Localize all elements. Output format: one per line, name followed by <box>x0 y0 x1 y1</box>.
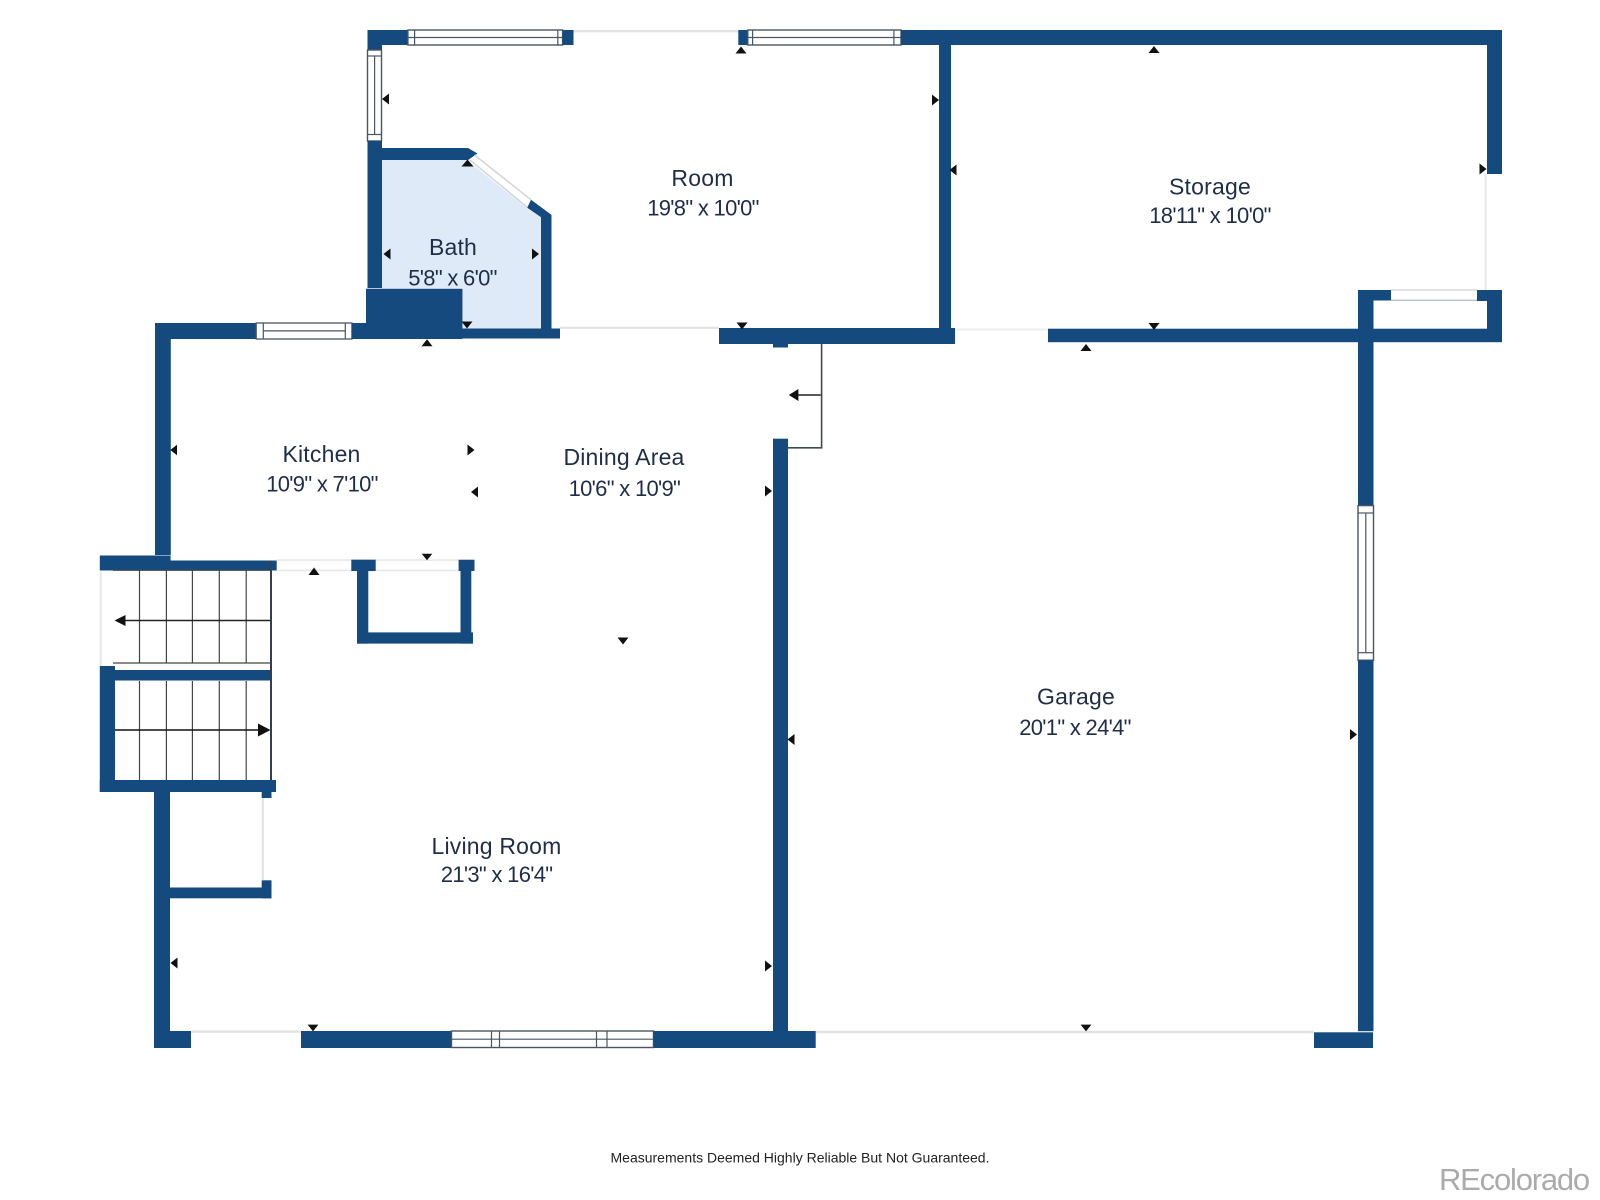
svg-text:Kitchen: Kitchen <box>282 441 360 467</box>
svg-text:21'3" x 16'4": 21'3" x 16'4" <box>441 862 553 887</box>
svg-text:Room: Room <box>671 165 733 191</box>
svg-text:Measurements Deemed Highly Rel: Measurements Deemed Highly Reliable But … <box>611 1150 990 1166</box>
svg-text:REcolorado: REcolorado <box>1439 1162 1589 1197</box>
svg-text:19'8" x 10'0": 19'8" x 10'0" <box>647 196 759 221</box>
svg-text:Bath: Bath <box>429 234 477 260</box>
svg-text:Garage: Garage <box>1037 684 1115 710</box>
svg-text:18'11" x 10'0": 18'11" x 10'0" <box>1149 203 1270 228</box>
svg-text:Dining Area: Dining Area <box>563 444 684 470</box>
svg-text:10'6" x 10'9": 10'6" x 10'9" <box>569 476 681 501</box>
svg-text:20'1" x 24'4": 20'1" x 24'4" <box>1019 715 1131 740</box>
svg-text:Storage: Storage <box>1169 174 1251 200</box>
svg-text:Living Room: Living Room <box>431 833 561 859</box>
svg-text:10'9" x 7'10": 10'9" x 7'10" <box>266 472 378 497</box>
svg-text:5'8" x 6'0": 5'8" x 6'0" <box>408 266 497 291</box>
